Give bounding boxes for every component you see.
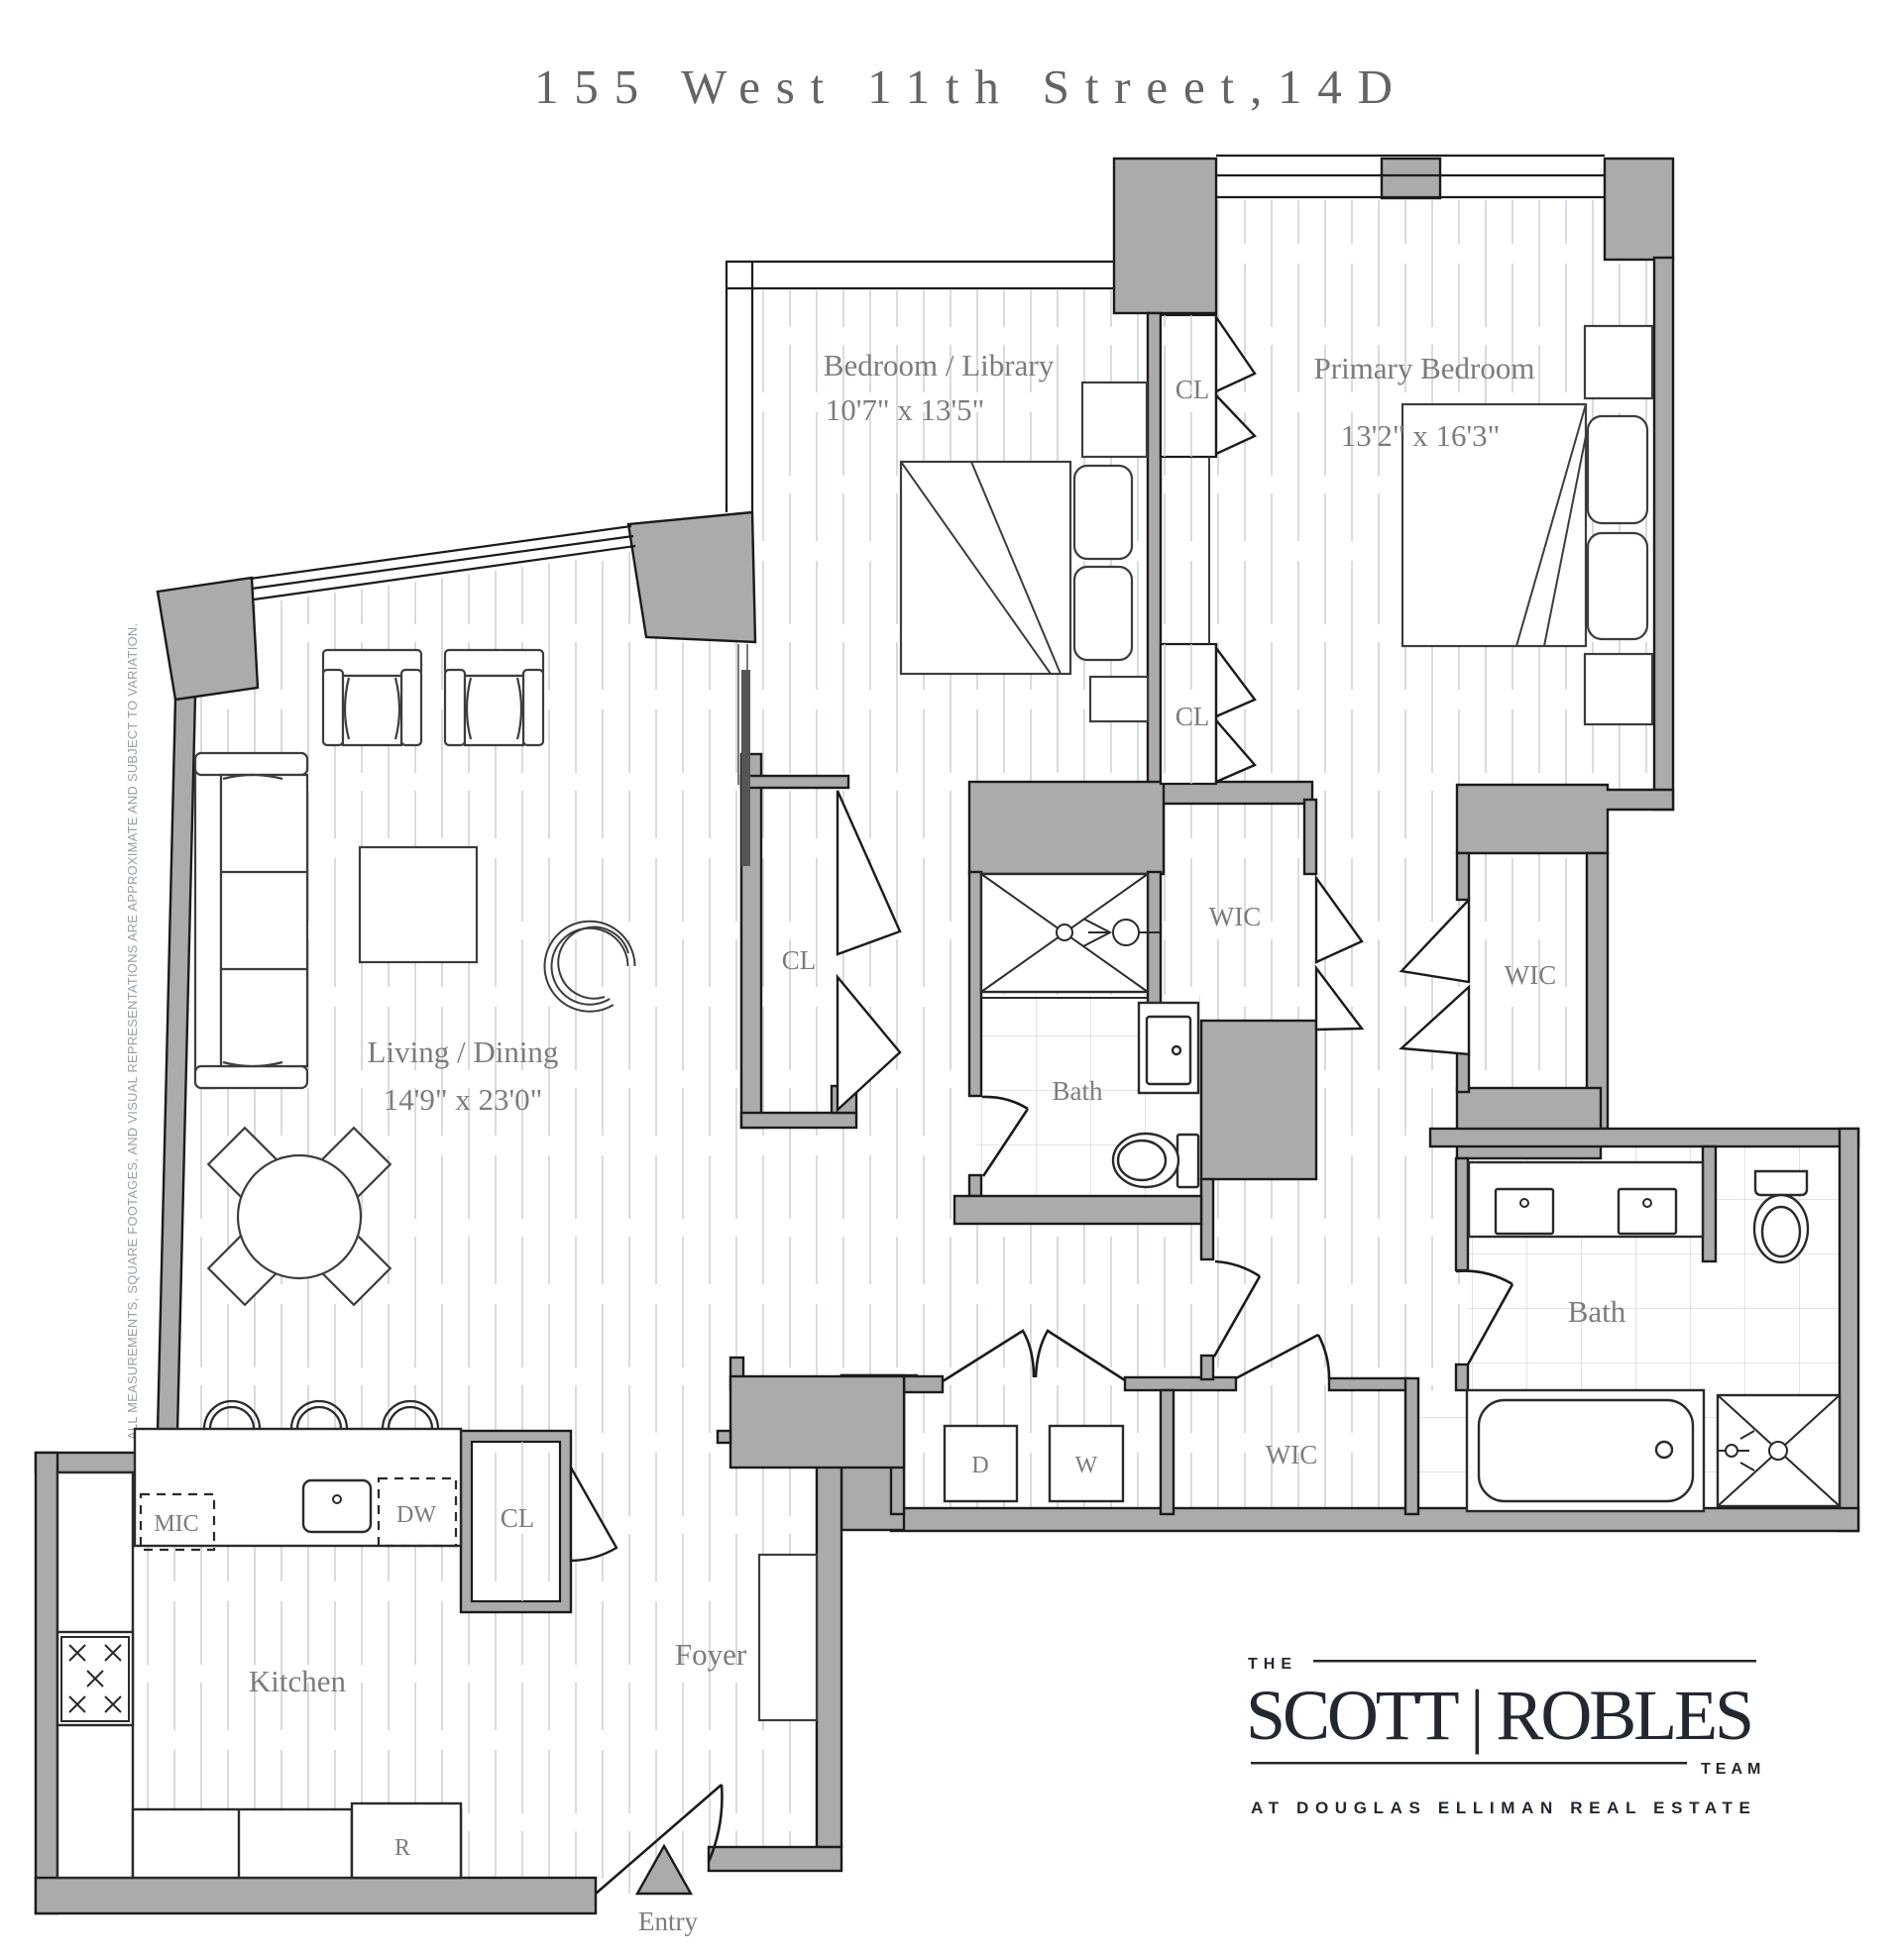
svg-text:Bedroom / Library: Bedroom / Library — [824, 348, 1055, 382]
svg-text:Living / Dining: Living / Dining — [368, 1034, 559, 1069]
svg-text:WIC: WIC — [1505, 960, 1556, 990]
svg-text:ALL MEASUREMENTS, SQUARE FOOTA: ALL MEASUREMENTS, SQUARE FOOTAGES, AND V… — [125, 623, 140, 1440]
svg-text:14'9" x 23'0": 14'9" x 23'0" — [384, 1082, 542, 1117]
svg-text:SCOTT | ROBLES: SCOTT | ROBLES — [1246, 1676, 1754, 1755]
svg-text:D: D — [971, 1453, 988, 1478]
svg-text:13'2" x 16'3": 13'2" x 16'3" — [1341, 418, 1500, 453]
svg-text:THE: THE — [1248, 1656, 1297, 1673]
svg-text:10'7" x 13'5": 10'7" x 13'5" — [826, 392, 984, 427]
svg-text:Foyer: Foyer — [675, 1637, 747, 1672]
svg-text:DW: DW — [396, 1502, 436, 1528]
svg-text:CL: CL — [1175, 702, 1210, 731]
svg-text:Entry: Entry — [638, 1906, 698, 1936]
svg-text:CL: CL — [501, 1503, 535, 1533]
svg-text:WIC: WIC — [1266, 1440, 1317, 1470]
svg-text:Kitchen: Kitchen — [249, 1664, 347, 1698]
svg-text:Primary Bedroom: Primary Bedroom — [1314, 351, 1535, 385]
svg-text:CL: CL — [782, 945, 817, 975]
svg-text:CL: CL — [1175, 375, 1210, 404]
svg-text:AT DOUGLAS ELLIMAN REAL ESTATE: AT DOUGLAS ELLIMAN REAL ESTATE — [1251, 1798, 1754, 1817]
svg-text:WIC: WIC — [1209, 902, 1261, 931]
svg-text:Bath: Bath — [1053, 1076, 1103, 1106]
svg-text:R: R — [394, 1835, 410, 1861]
svg-text:MIC: MIC — [154, 1511, 198, 1537]
svg-text:W: W — [1075, 1453, 1098, 1478]
svg-text:TEAM: TEAM — [1701, 1761, 1765, 1778]
svg-text:Bath: Bath — [1568, 1294, 1626, 1329]
